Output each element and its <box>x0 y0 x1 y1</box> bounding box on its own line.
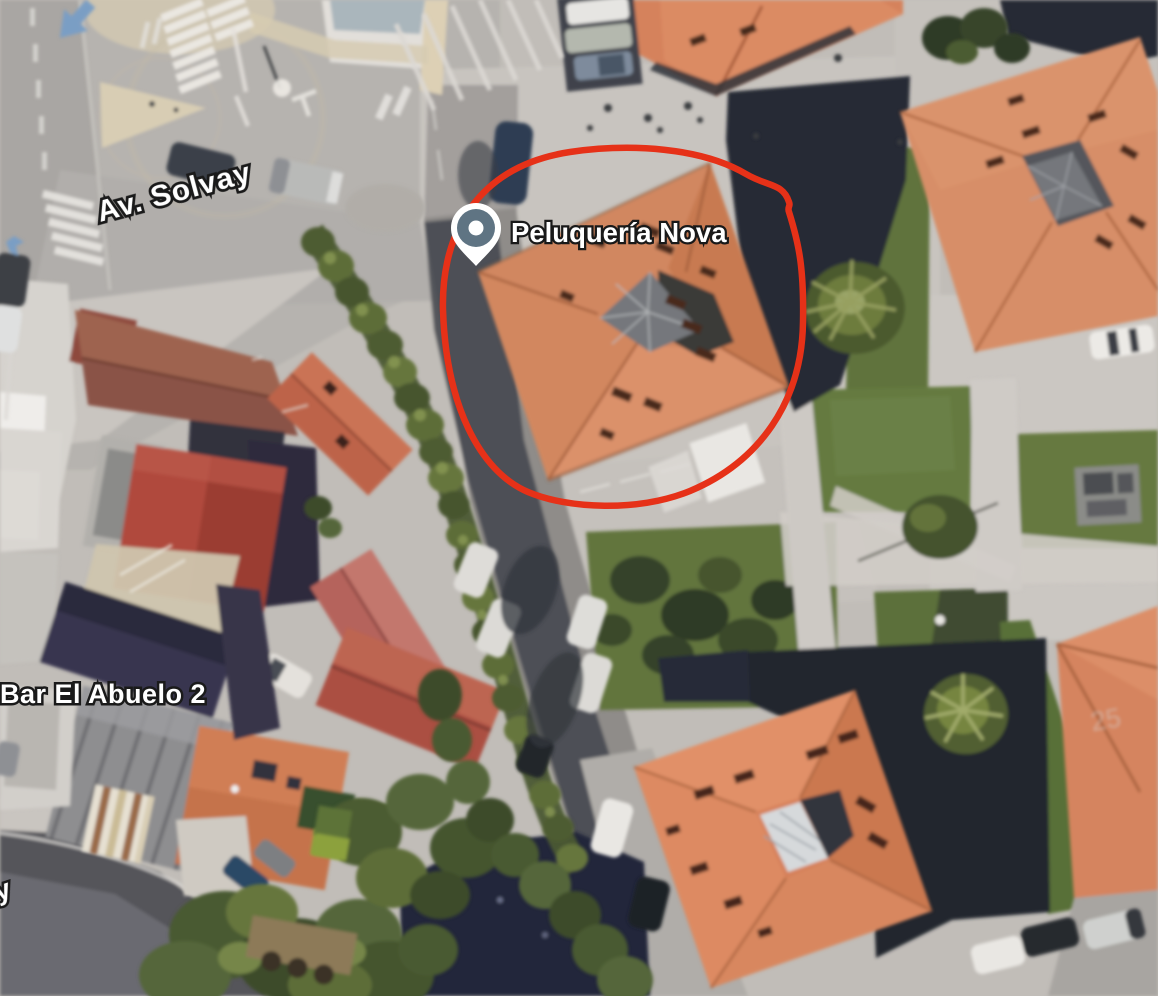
svg-text:Peluquería Nova: Peluquería Nova <box>511 217 727 248</box>
svg-text:Bar El Abuelo 2: Bar El Abuelo 2 <box>0 679 206 709</box>
svg-text:25: 25 <box>1088 702 1123 737</box>
